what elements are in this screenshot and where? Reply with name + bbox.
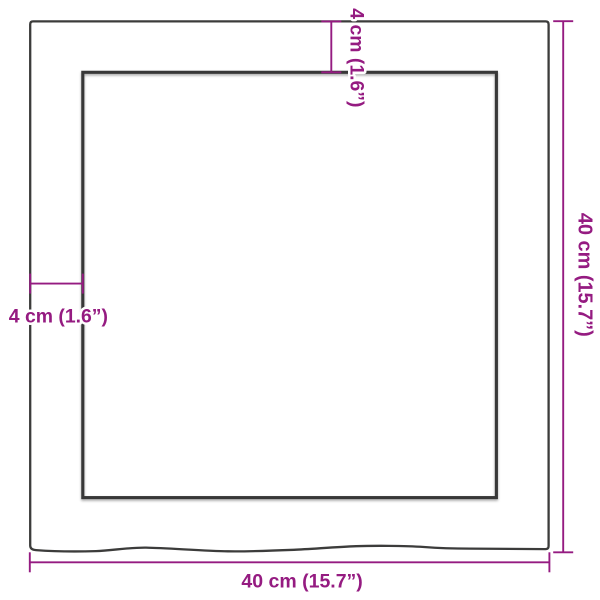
svg-text:4 cm (1.6”): 4 cm (1.6”) — [345, 8, 367, 107]
svg-text:40 cm (15.7”): 40 cm (15.7”) — [574, 213, 596, 337]
svg-text:4 cm (1.6”): 4 cm (1.6”) — [9, 305, 108, 327]
svg-text:40 cm (15.7”): 40 cm (15.7”) — [241, 571, 362, 593]
